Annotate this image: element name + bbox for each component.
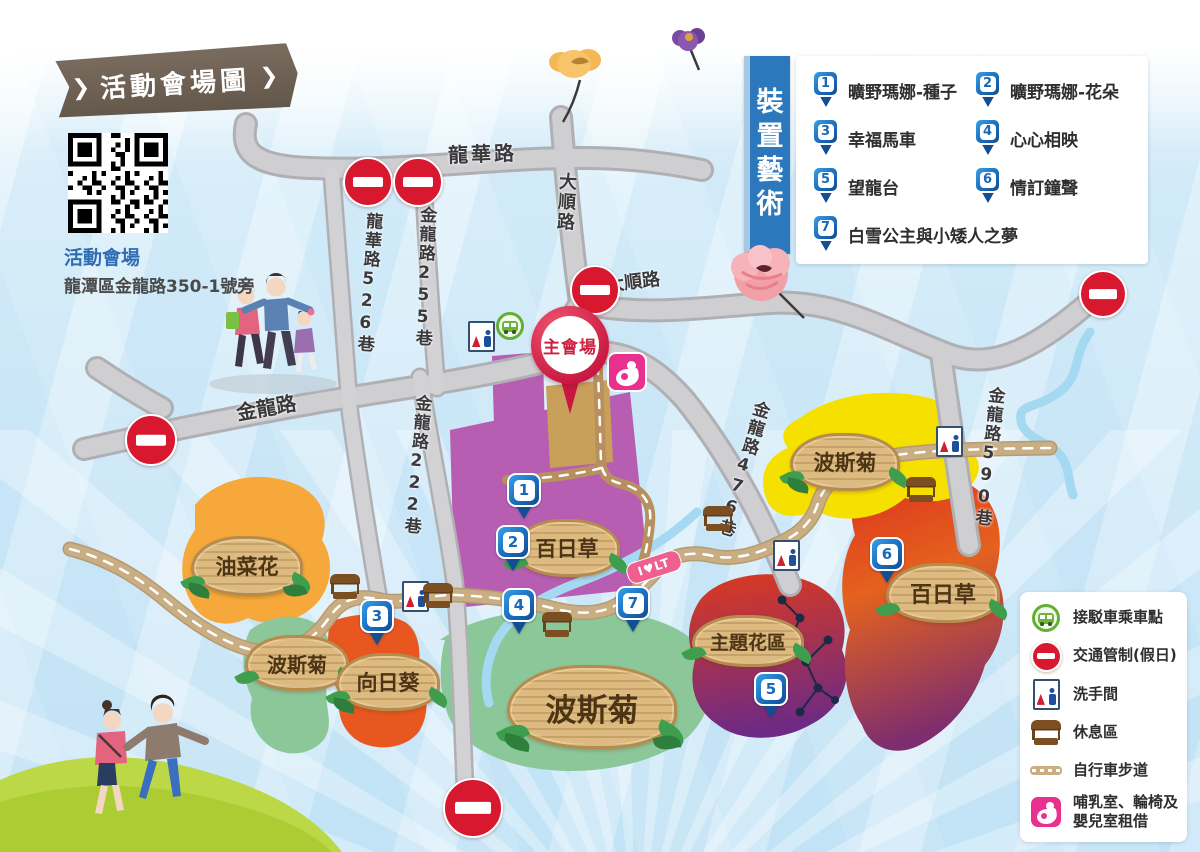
female-figure-icon — [406, 596, 414, 607]
pin-number: 1 — [514, 480, 535, 501]
map-pin-3: 3 — [360, 599, 394, 649]
main-venue-label: 主會場 — [541, 316, 599, 374]
shuttle-bus-stop-icon — [496, 312, 524, 340]
canopy-base — [426, 601, 450, 608]
pin-number: 6 — [877, 544, 898, 565]
area-sign-cosmos-northeast: 波斯菊 — [790, 433, 900, 491]
canopy-roof — [703, 506, 733, 515]
art-item-label: 望龍台 — [848, 174, 899, 199]
art-legend-item-1: 1 曠野瑪娜-種子 — [812, 68, 974, 112]
no-entry-icon — [343, 157, 393, 207]
pin-number: 1 — [818, 76, 834, 92]
pin-icon: 5 — [812, 166, 839, 206]
art-legend-item-4: 4 心心相映 — [974, 116, 1136, 160]
art-legend-item-7: 7 白雪公主與小矮人之夢 — [812, 212, 1136, 256]
chevron-right-icon: ❯ — [71, 75, 91, 101]
art-item-label: 曠野瑪娜-花朵 — [1010, 78, 1119, 103]
restroom-icon — [773, 540, 800, 571]
purple-flower-decoration — [672, 28, 705, 70]
restroom-icon — [468, 321, 495, 352]
main-venue-pin: 主會場 — [531, 306, 609, 418]
male-figure-icon — [1049, 694, 1056, 705]
art-legend-title: 裝置藝術 — [748, 87, 787, 223]
map-pin-1: 1 — [507, 473, 541, 523]
art-legend-item-5: 5 望龍台 — [812, 164, 974, 208]
art-legend-item-3: 3 幸福馬車 — [812, 116, 974, 160]
pin-body: 2 — [496, 525, 530, 559]
area-sign-rapeseed: 油菜花 — [191, 536, 303, 596]
male-figure-icon — [484, 336, 491, 347]
legend-label: 洗手間 — [1073, 685, 1118, 705]
area-sign-label: 向日葵 — [357, 667, 420, 697]
area-sign-cosmos-left: 波斯菊 — [245, 635, 349, 691]
art-legend-item-6: 6 情訂鐘聲 — [974, 164, 1136, 208]
no-entry-icon — [443, 778, 503, 838]
restroom-icon — [1033, 679, 1060, 710]
canopy-roof — [906, 477, 936, 486]
art-item-label: 幸福馬車 — [848, 126, 916, 151]
rest-area-icon — [1031, 720, 1061, 745]
legend-label: 接駁車乘車點 — [1073, 608, 1163, 628]
pin-number: 4 — [980, 124, 996, 140]
area-sign-sunflower: 向日葵 — [336, 653, 440, 711]
chevron-right-icon: ❯ — [259, 63, 279, 89]
no-entry-icon — [1079, 270, 1127, 318]
female-figure-icon — [472, 336, 480, 347]
legend-row-shuttle: 接駁車乘車點 — [1028, 602, 1179, 634]
pin-icon: 4 — [974, 118, 1001, 158]
pin-icon: 7 — [812, 214, 839, 254]
pin-number: 4 — [509, 595, 530, 616]
venue-address: 龍潭區金龍路350-1號旁 — [64, 272, 254, 297]
pin-number: 3 — [818, 124, 834, 140]
canopy-roof — [330, 574, 360, 583]
pin-icon: 3 — [812, 118, 839, 158]
pink-peony-decoration — [716, 234, 812, 326]
pin-icon: 1 — [812, 70, 839, 110]
female-figure-icon — [1037, 694, 1045, 705]
area-sign-cosmos-main: 波斯菊 — [507, 665, 677, 749]
venue-info: 活動會場 龍潭區金龍路350-1號旁 — [64, 243, 254, 297]
pin-number: 3 — [367, 606, 388, 627]
road-label-jinlong-255: 金龍路255巷 — [410, 206, 440, 349]
shuttle-bus-icon — [1032, 604, 1060, 632]
bus-icon — [1038, 613, 1054, 624]
pin-icon: 6 — [974, 166, 1001, 206]
area-sign-theme-flower: 主題花區 — [692, 615, 804, 667]
map-legend-box: 接駁車乘車點 交通管制(假日) 洗手間 休息區 自行車步道 哺乳室、輪椅及嬰兒室… — [1020, 592, 1187, 842]
canopy-base — [333, 592, 357, 599]
canopy-base — [909, 495, 933, 502]
legend-label: 休息區 — [1073, 723, 1118, 743]
pin-number: 7 — [623, 593, 644, 614]
nursing-room-icon — [1029, 795, 1063, 829]
pin-number: 2 — [503, 532, 524, 553]
map-pin-6: 6 — [870, 537, 904, 587]
art-item-label: 曠野瑪娜-種子 — [848, 78, 957, 103]
rest-area-icon — [330, 574, 360, 599]
rest-area-icon — [703, 506, 733, 531]
main-venue-balloon: 主會場 — [531, 306, 609, 384]
baby-head — [621, 373, 628, 380]
bus-icon — [502, 321, 518, 332]
legend-row-traffic: 交通管制(假日) — [1028, 640, 1179, 672]
no-entry-icon — [393, 157, 443, 207]
legend-label: 自行車步道 — [1073, 761, 1148, 781]
area-sign-label: 百日草 — [910, 577, 976, 609]
pin-body: 4 — [502, 588, 536, 622]
pin-number: 2 — [980, 76, 996, 92]
canopy-base — [706, 524, 730, 531]
pin-body: 6 — [870, 537, 904, 571]
pin-body: 7 — [616, 586, 650, 620]
area-sign-label: 波斯菊 — [267, 649, 327, 678]
no-entry-icon — [1031, 641, 1062, 672]
pin-body: 1 — [507, 473, 541, 507]
legend-row-nursing: 哺乳室、輪椅及嬰兒室租借 — [1028, 793, 1179, 832]
male-figure-icon — [952, 441, 959, 452]
map-pin-2: 2 — [496, 525, 530, 575]
legend-label: 哺乳室、輪椅及嬰兒室租借 — [1073, 793, 1179, 832]
art-item-label: 心心相映 — [1010, 126, 1078, 151]
male-figure-icon — [789, 555, 796, 566]
qr-code — [68, 133, 168, 233]
map-pin-7: 7 — [616, 586, 650, 636]
pin-number: 5 — [761, 679, 782, 700]
rest-area-icon — [423, 583, 453, 608]
page-title: 活動會場圖 — [99, 59, 251, 105]
canopy-base — [545, 630, 569, 637]
nursing-room-icon — [607, 352, 647, 392]
area-sign-label: 波斯菊 — [546, 685, 639, 730]
map-pin-5: 5 — [754, 672, 788, 722]
canopy-roof — [542, 612, 572, 621]
area-sign-label: 百日草 — [536, 533, 599, 563]
art-legend-box: 1 曠野瑪娜-種子 2 曠野瑪娜-花朵 3 幸福馬車 4 心心相映 5 望龍台 … — [796, 56, 1148, 264]
pin-body: 3 — [360, 599, 394, 633]
area-sign-label: 波斯菊 — [814, 447, 877, 477]
pin-number: 7 — [818, 220, 834, 236]
art-item-label: 情訂鐘聲 — [1010, 174, 1078, 199]
female-figure-icon — [777, 555, 785, 566]
legend-row-bike-path: 自行車步道 — [1028, 755, 1179, 787]
pin-number: 6 — [980, 172, 996, 188]
event-venue-map-poster: 龍華路 大順路 大順路 龍華路526巷 金龍路255巷 金龍路 金龍路222巷 … — [0, 0, 1200, 852]
qr-code-image — [68, 133, 168, 233]
venue-name: 活動會場 — [64, 243, 254, 270]
art-legend-item-2: 2 曠野瑪娜-花朵 — [974, 68, 1136, 112]
legend-row-restroom: 洗手間 — [1028, 678, 1179, 710]
road-label-dashun-vertical: 大順路 — [550, 171, 579, 232]
art-item-label: 白雪公主與小矮人之夢 — [848, 222, 1018, 247]
area-sign-label: 主題花區 — [710, 628, 786, 655]
restroom-icon — [936, 426, 963, 457]
legend-row-rest-area: 休息區 — [1028, 717, 1179, 749]
bike-path-icon — [1030, 766, 1062, 775]
pin-body: 5 — [754, 672, 788, 706]
area-sign-label: 油菜花 — [216, 551, 279, 581]
canopy-roof — [423, 583, 453, 592]
pin-icon: 2 — [974, 70, 1001, 110]
rest-area-icon — [906, 477, 936, 502]
pin-number: 5 — [818, 172, 834, 188]
art-legend-banner: 裝置藝術 — [744, 56, 790, 254]
legend-label: 交通管制(假日) — [1073, 646, 1177, 666]
rest-area-icon — [542, 612, 572, 637]
no-entry-icon — [125, 414, 177, 466]
female-figure-icon — [940, 441, 948, 452]
road-label-longhua: 龍華路 — [448, 137, 518, 168]
map-pin-4: 4 — [502, 588, 536, 638]
